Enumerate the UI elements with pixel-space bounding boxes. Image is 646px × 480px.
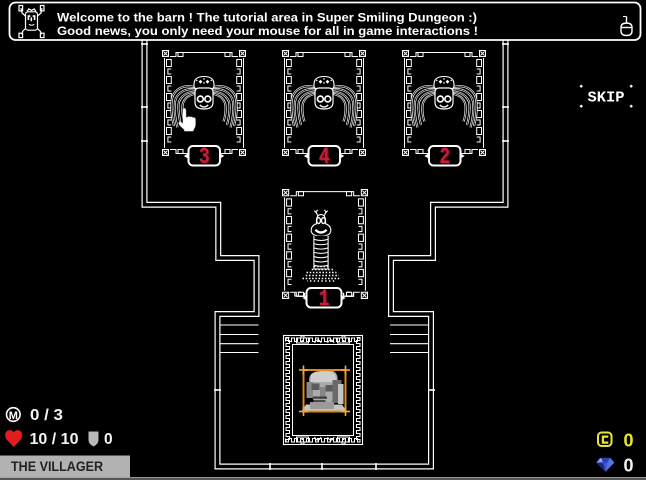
svg-text:THE VILLAGER: THE VILLAGER	[11, 459, 103, 475]
svg-text:4: 4	[319, 144, 330, 171]
svg-text:0: 0	[624, 431, 634, 451]
svg-text:M: M	[9, 410, 18, 422]
svg-text:1: 1	[319, 286, 330, 313]
svg-text:Good news, you only need your: Good news, you only need your mouse for …	[57, 24, 478, 38]
svg-text:SKIP: SKIP	[588, 91, 625, 107]
svg-text:0: 0	[624, 455, 634, 475]
svg-text:0: 0	[104, 431, 113, 448]
svg-text:3: 3	[199, 144, 210, 171]
svg-text:10 / 10: 10 / 10	[30, 431, 79, 448]
svg-text:Welcome to the barn ! The tuto: Welcome to the barn ! The tutorial area …	[57, 11, 477, 25]
svg-text:2: 2	[439, 144, 450, 171]
svg-text:0 / 3: 0 / 3	[30, 407, 63, 424]
